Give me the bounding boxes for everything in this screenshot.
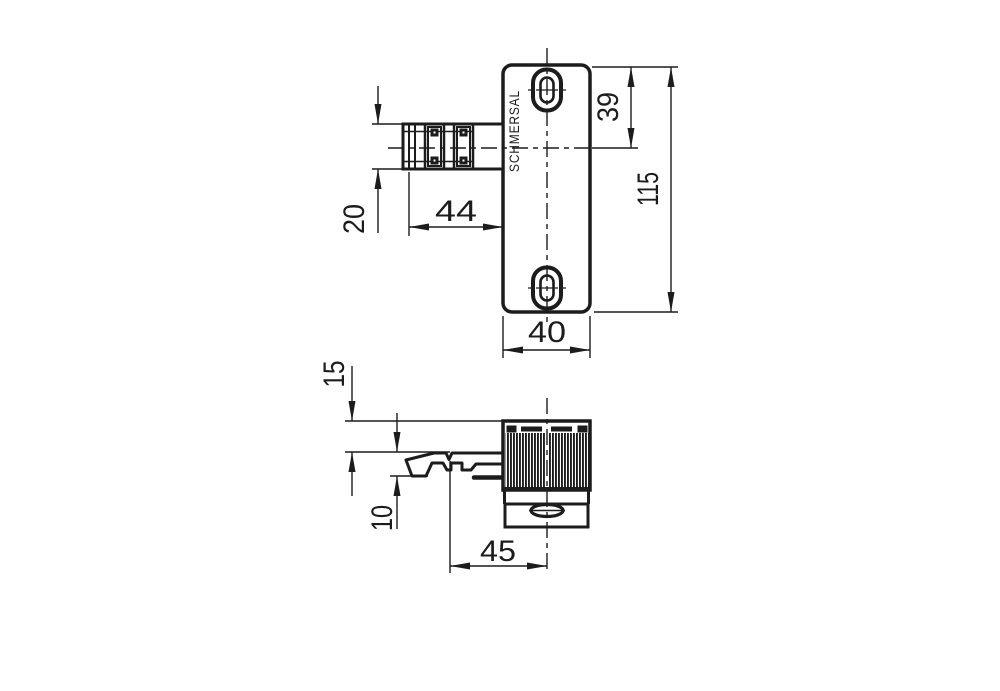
- dim-label-115: 115: [632, 172, 665, 206]
- screw-dot: [434, 160, 436, 162]
- brand-label: SCHMERSAL: [506, 90, 522, 172]
- screw-dot: [463, 132, 465, 134]
- actuator-bottom-edge: [406, 460, 502, 476]
- clamp-mark: [578, 426, 588, 433]
- arrowhead: [349, 452, 356, 472]
- clamp-mark: [521, 427, 542, 432]
- technical-drawing: SCHMERSAL 20 44 39: [0, 0, 1000, 691]
- arrowhead: [483, 224, 503, 231]
- arrowhead: [394, 432, 401, 452]
- dim-label-15: 15: [318, 361, 351, 388]
- arrowhead: [628, 128, 635, 148]
- arrowhead: [527, 563, 547, 570]
- dimension-body-width: 40: [503, 316, 590, 358]
- terminal-connector: [403, 124, 503, 169]
- actuator-top-edge: [406, 453, 502, 460]
- dim-label-40: 40: [528, 316, 566, 349]
- arrowhead: [628, 67, 635, 87]
- arrowhead: [668, 67, 675, 87]
- dim-label-39: 39: [592, 92, 625, 122]
- arrowhead: [503, 347, 523, 354]
- arrowhead: [349, 401, 356, 421]
- dim-label-44: 44: [435, 195, 477, 228]
- dimension-side-actuator: 10: [366, 413, 428, 531]
- dimension-hole-offset: 39: [592, 67, 678, 148]
- drawing-canvas: SCHMERSAL 20 44 39: [0, 0, 1000, 691]
- arrowhead: [570, 347, 590, 354]
- screw-dot: [463, 160, 465, 162]
- front-view: SCHMERSAL 20 44 39: [338, 48, 678, 358]
- arrowhead: [668, 292, 675, 312]
- arrowhead: [375, 169, 382, 189]
- dim-label-10: 10: [366, 505, 399, 531]
- arrowhead: [409, 224, 429, 231]
- arrowhead: [450, 563, 470, 570]
- dim-label-20: 20: [338, 204, 371, 234]
- dim-label-45: 45: [480, 535, 516, 568]
- arrowhead: [375, 104, 382, 124]
- clamp-mark: [507, 426, 517, 433]
- arrowhead: [394, 476, 401, 496]
- actuator-profile: [406, 453, 502, 478]
- dimension-connector-height: 20: [338, 86, 403, 234]
- screw-dot: [434, 132, 436, 134]
- side-view: 15 10 45: [318, 361, 590, 574]
- clamp-mark: [551, 427, 572, 432]
- dimension-connector-length: 44: [409, 172, 503, 236]
